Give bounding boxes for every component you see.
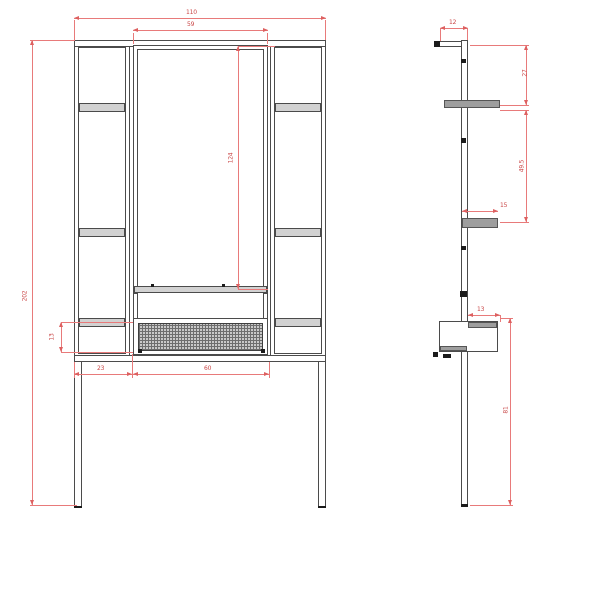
drawing-canvas: 110 59 202 124 13 bbox=[0, 0, 600, 600]
dim-upper-section: 27 bbox=[523, 69, 529, 76]
dim-mid-section: 49.5 bbox=[519, 160, 525, 173]
dim-shelf-depth: 15 bbox=[500, 203, 507, 209]
dim-table-depth: 13 bbox=[477, 307, 484, 313]
dim-top-depth: 12 bbox=[449, 20, 456, 26]
dim-leg-height: 81 bbox=[504, 406, 510, 413]
side-dimensions: 12 27 49.5 15 13 81 bbox=[0, 0, 600, 600]
